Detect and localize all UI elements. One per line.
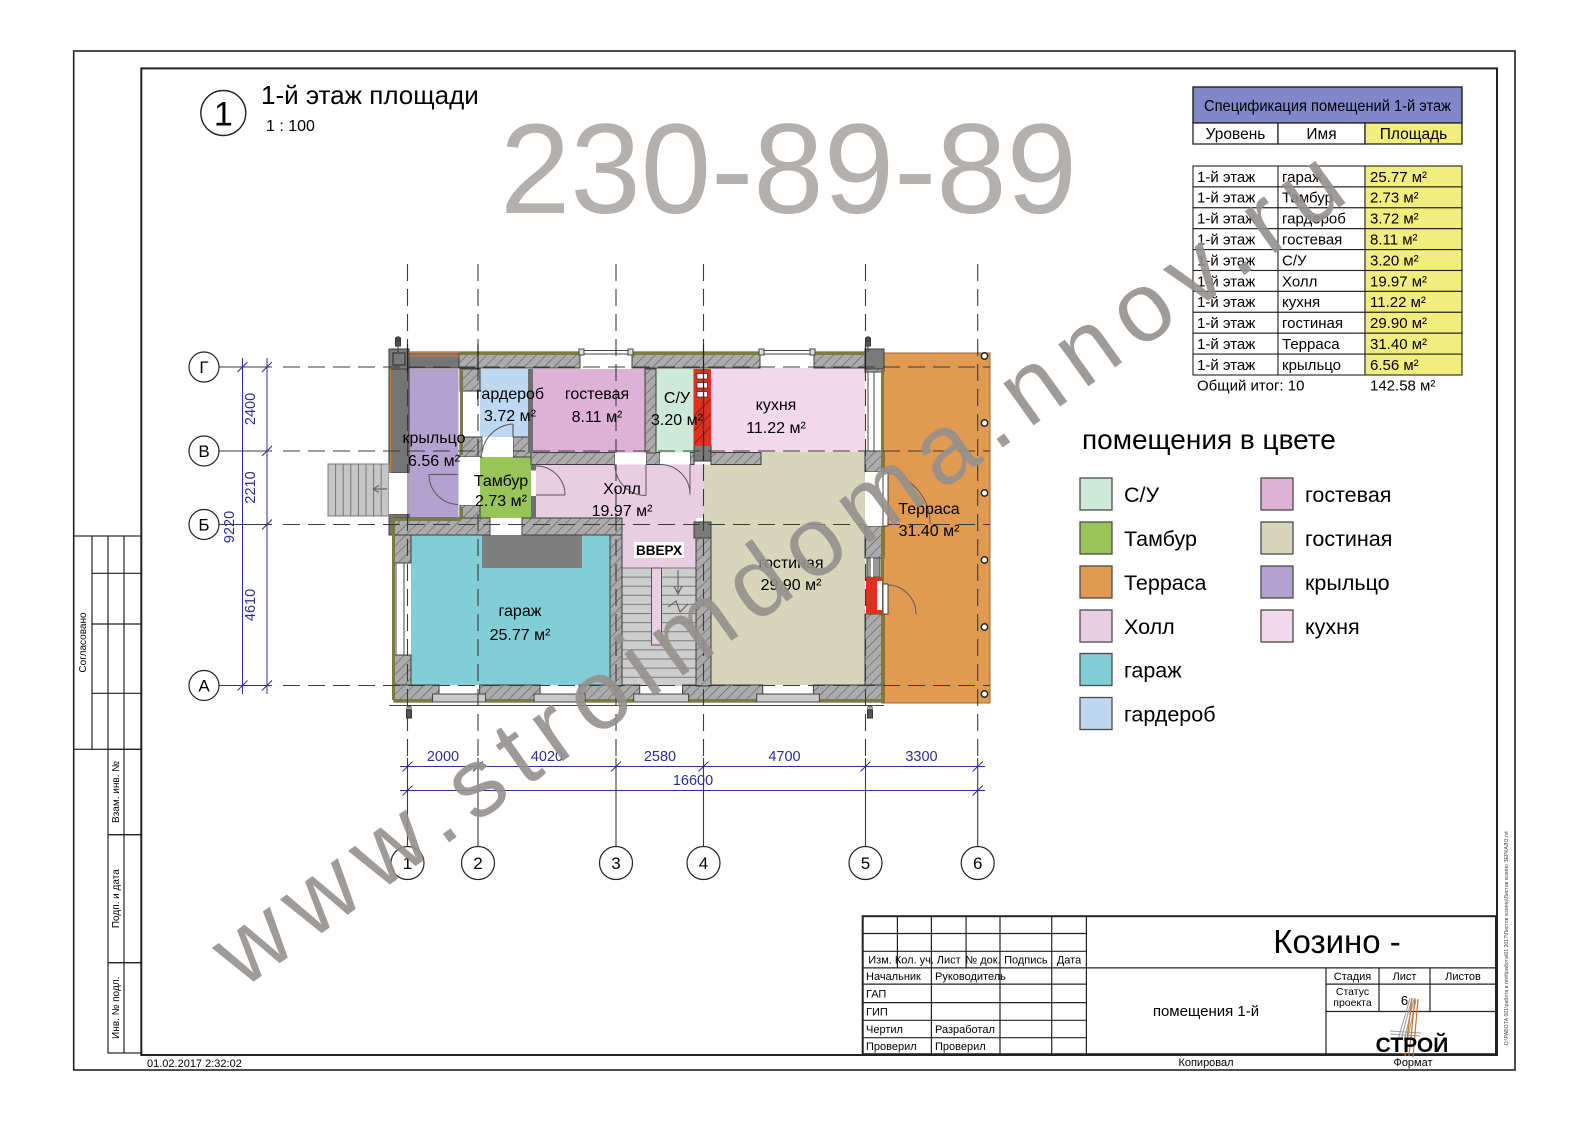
svg-text:Терраса: Терраса bbox=[1282, 336, 1340, 353]
svg-text:Терраса: Терраса bbox=[1124, 571, 1207, 595]
svg-text:А: А bbox=[198, 677, 210, 696]
svg-text:крыльцо: крыльцо bbox=[1282, 357, 1341, 374]
svg-text:Холл: Холл bbox=[1124, 615, 1175, 639]
svg-text:гостиная: гостиная bbox=[1305, 527, 1392, 551]
svg-text:230-89-89: 230-89-89 bbox=[500, 98, 1077, 241]
svg-text:№ док.: № док. bbox=[965, 955, 1000, 967]
svg-text:D:\РАБОТА 001\работа в revit\р: D:\РАБОТА 001\работа в revit\работа\01 2… bbox=[1504, 831, 1510, 1045]
svg-text:3.72 м²: 3.72 м² bbox=[1370, 211, 1419, 228]
svg-text:2: 2 bbox=[473, 854, 482, 873]
svg-text:31.40 м²: 31.40 м² bbox=[1370, 336, 1427, 353]
svg-text:Подпись: Подпись bbox=[1004, 955, 1048, 967]
svg-text:6.56 м²: 6.56 м² bbox=[408, 453, 461, 470]
svg-text:3300: 3300 bbox=[905, 749, 937, 765]
svg-text:В: В bbox=[198, 442, 209, 461]
svg-text:25.77 м²: 25.77 м² bbox=[1370, 169, 1427, 186]
svg-text:Кол. уч.: Кол. уч. bbox=[895, 955, 934, 967]
svg-text:Инв. № подл.: Инв. № подл. bbox=[111, 977, 122, 1039]
svg-text:Тамбур: Тамбур bbox=[474, 473, 528, 490]
svg-text:кухня: кухня bbox=[756, 397, 797, 414]
svg-text:Уровень: Уровень bbox=[1206, 126, 1266, 143]
svg-text:Общий итог: 10: Общий итог: 10 bbox=[1197, 378, 1304, 395]
svg-text:11.22 м²: 11.22 м² bbox=[746, 420, 806, 437]
svg-text:Проверил: Проверил bbox=[935, 1041, 986, 1053]
svg-text:Холл: Холл bbox=[603, 481, 641, 498]
svg-text:Козино -: Козино - bbox=[1273, 923, 1401, 960]
svg-text:Б: Б bbox=[198, 516, 209, 535]
svg-text:6.56 м²: 6.56 м² bbox=[1370, 357, 1419, 374]
svg-text:Разработал: Разработал bbox=[935, 1024, 995, 1036]
svg-text:2400: 2400 bbox=[243, 393, 259, 425]
svg-text:Формат: Формат bbox=[1393, 1057, 1432, 1069]
svg-text:19.97 м²: 19.97 м² bbox=[592, 503, 653, 520]
svg-text:Чертил: Чертил bbox=[866, 1024, 903, 1036]
svg-text:Начальник: Начальник bbox=[866, 971, 921, 983]
svg-text:1 : 100: 1 : 100 bbox=[266, 118, 315, 135]
svg-text:Дата: Дата bbox=[1057, 955, 1082, 967]
svg-text:6: 6 bbox=[973, 854, 982, 873]
svg-text:Тамбур: Тамбур bbox=[1124, 527, 1197, 551]
svg-text:19.97 м²: 19.97 м² bbox=[1370, 273, 1427, 290]
svg-text:2210: 2210 bbox=[243, 471, 259, 503]
svg-text:Лист: Лист bbox=[1393, 971, 1417, 983]
svg-text:1-й этаж площади: 1-й этаж площади bbox=[261, 80, 479, 110]
svg-text:4700: 4700 bbox=[768, 749, 800, 765]
svg-text:гараж: гараж bbox=[1124, 659, 1182, 683]
svg-text:Изм.: Изм. bbox=[868, 955, 892, 967]
svg-text:Согласовано: Согласовано bbox=[78, 612, 89, 673]
svg-text:Имя: Имя bbox=[1306, 126, 1336, 143]
svg-text:гардероб: гардероб bbox=[1124, 703, 1216, 727]
svg-text:Лист: Лист bbox=[937, 955, 961, 967]
svg-text:142.58 м²: 142.58 м² bbox=[1370, 378, 1435, 395]
svg-text:крыльцо: крыльцо bbox=[1305, 571, 1390, 595]
svg-text:ВВЕРХ: ВВЕРХ bbox=[636, 543, 682, 558]
svg-text:проекта: проекта bbox=[1333, 997, 1372, 1009]
svg-text:гостевая: гостевая bbox=[565, 386, 629, 403]
svg-text:2.73 м²: 2.73 м² bbox=[475, 493, 528, 510]
svg-text:1-й этаж: 1-й этаж bbox=[1197, 357, 1255, 374]
svg-text:4: 4 bbox=[699, 854, 708, 873]
svg-text:помещения в цвете: помещения в цвете bbox=[1082, 424, 1336, 455]
svg-text:2.73 м²: 2.73 м² bbox=[1370, 190, 1419, 207]
svg-text:С/У: С/У bbox=[664, 390, 691, 407]
svg-text:ГАП: ГАП bbox=[866, 989, 886, 1001]
svg-text:ГИП: ГИП bbox=[866, 1007, 888, 1019]
svg-text:3.20 м²: 3.20 м² bbox=[651, 412, 704, 429]
svg-text:8.11 м²: 8.11 м² bbox=[1370, 232, 1418, 249]
svg-text:4610: 4610 bbox=[243, 589, 259, 621]
svg-text:1-й этаж: 1-й этаж bbox=[1197, 336, 1255, 353]
svg-text:25.77 м²: 25.77 м² bbox=[490, 627, 551, 644]
svg-text:2580: 2580 bbox=[644, 749, 676, 765]
svg-text:Площадь: Площадь bbox=[1380, 126, 1447, 143]
svg-text:Проверил: Проверил bbox=[866, 1041, 917, 1053]
svg-text:5: 5 bbox=[861, 854, 870, 873]
svg-text:Взам. инв. №: Взам. инв. № bbox=[111, 761, 122, 823]
svg-text:8.11 м²: 8.11 м² bbox=[572, 409, 623, 426]
svg-text:9220: 9220 bbox=[222, 511, 238, 543]
svg-text:Г: Г bbox=[199, 358, 208, 377]
svg-text:Руководитель: Руководитель bbox=[935, 971, 1006, 983]
svg-text:кухня: кухня bbox=[1305, 615, 1360, 639]
svg-text:Холл: Холл bbox=[1282, 273, 1317, 290]
svg-text:Листов: Листов bbox=[1445, 971, 1481, 983]
svg-text:гардероб: гардероб bbox=[476, 386, 544, 403]
svg-text:кухня: кухня bbox=[1282, 294, 1320, 311]
svg-text:16600: 16600 bbox=[673, 773, 713, 789]
svg-text:1: 1 bbox=[214, 96, 233, 134]
svg-text:крыльцо: крыльцо bbox=[403, 430, 466, 447]
svg-text:29.90 м²: 29.90 м² bbox=[1370, 315, 1427, 332]
svg-text:3.20 м²: 3.20 м² bbox=[1370, 252, 1419, 269]
svg-text:01.02.2017 2:32:02: 01.02.2017 2:32:02 bbox=[147, 1058, 242, 1070]
svg-text:С/У: С/У bbox=[1124, 483, 1160, 507]
svg-text:6: 6 bbox=[1401, 993, 1408, 1008]
svg-text:Подп. и дата: Подп. и дата bbox=[111, 869, 122, 928]
svg-text:Стадия: Стадия bbox=[1334, 971, 1372, 983]
svg-text:11.22 м²: 11.22 м² bbox=[1370, 294, 1426, 311]
svg-text:гостиная: гостиная bbox=[1282, 315, 1343, 332]
svg-text:гостевая: гостевая bbox=[1305, 483, 1391, 507]
svg-text:гараж: гараж bbox=[499, 603, 542, 620]
svg-text:3.72 м²: 3.72 м² bbox=[484, 408, 537, 425]
svg-text:Спецификация помещений 1-й эта: Спецификация помещений 1-й этаж bbox=[1204, 98, 1452, 115]
svg-text:помещения 1-й: помещения 1-й bbox=[1153, 1003, 1259, 1020]
svg-text:Копировал: Копировал bbox=[1178, 1057, 1233, 1069]
svg-text:СТРОЙ: СТРОЙ bbox=[1376, 1033, 1449, 1057]
svg-text:3: 3 bbox=[611, 854, 620, 873]
